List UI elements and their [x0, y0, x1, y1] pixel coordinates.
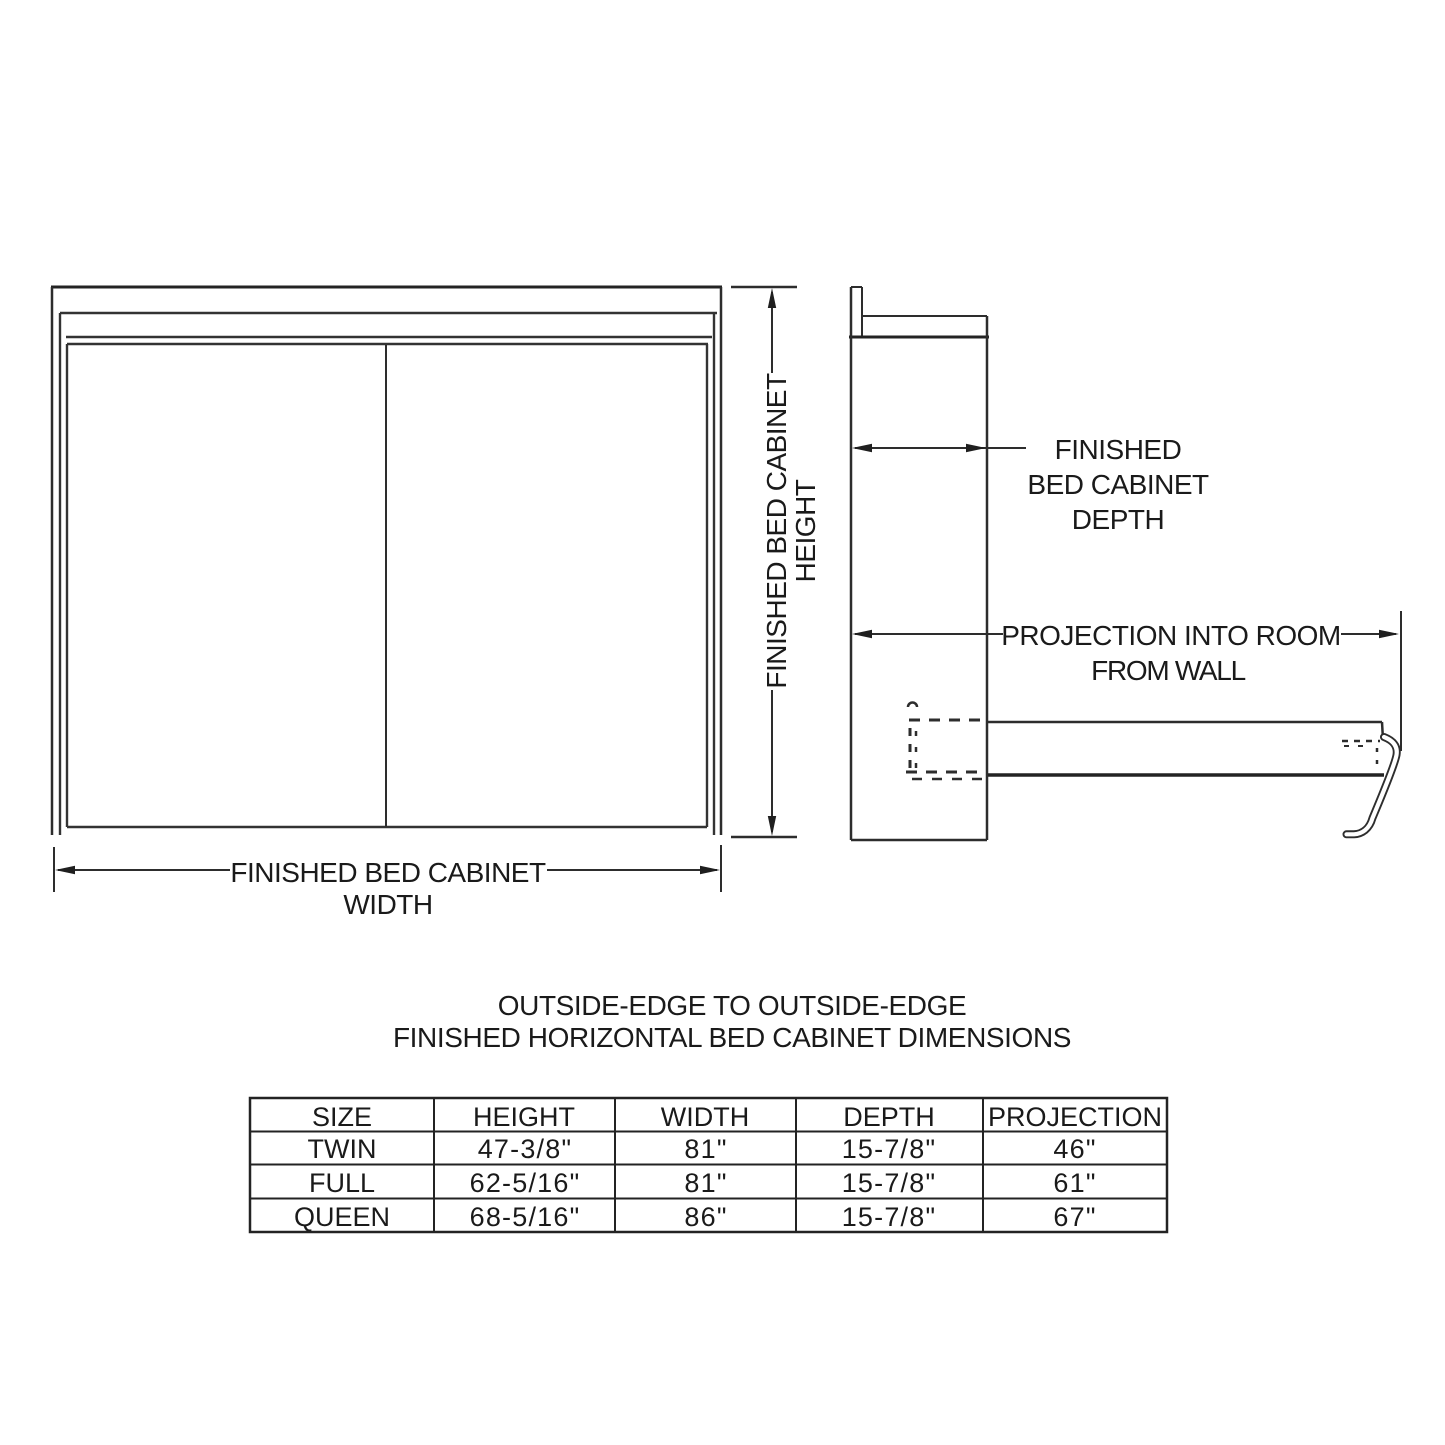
svg-text:46": 46": [1053, 1134, 1096, 1164]
svg-text:FINISHED BED CABINET: FINISHED BED CABINET: [761, 373, 792, 689]
svg-text:HEIGHT: HEIGHT: [473, 1102, 575, 1132]
svg-text:15-7/8": 15-7/8": [842, 1202, 937, 1232]
svg-text:81": 81": [684, 1134, 727, 1164]
svg-text:QUEEN: QUEEN: [294, 1202, 390, 1232]
svg-text:WIDTH: WIDTH: [343, 889, 432, 920]
svg-text:61": 61": [1053, 1168, 1096, 1198]
svg-text:FINISHED HORIZONTAL BED CABINE: FINISHED HORIZONTAL BED CABINET DIMENSIO…: [393, 1022, 1071, 1053]
svg-text:FROM WALL: FROM WALL: [1091, 655, 1245, 686]
svg-text:PROJECTION: PROJECTION: [988, 1102, 1162, 1132]
svg-text:15-7/8": 15-7/8": [842, 1168, 937, 1198]
svg-text:WIDTH: WIDTH: [661, 1102, 749, 1132]
svg-text:SIZE: SIZE: [312, 1102, 372, 1132]
svg-text:BED CABINET: BED CABINET: [1027, 469, 1209, 500]
svg-text:86": 86": [684, 1202, 727, 1232]
svg-text:62-5/16": 62-5/16": [470, 1168, 581, 1198]
svg-text:68-5/16": 68-5/16": [470, 1202, 581, 1232]
svg-text:81": 81": [684, 1168, 727, 1198]
svg-text:FULL: FULL: [309, 1168, 375, 1198]
svg-text:HEIGHT: HEIGHT: [790, 479, 821, 582]
svg-text:FINISHED BED CABINET: FINISHED BED CABINET: [230, 857, 546, 888]
svg-text:67": 67": [1053, 1202, 1096, 1232]
svg-text:47-3/8": 47-3/8": [478, 1134, 573, 1164]
svg-text:15-7/8": 15-7/8": [842, 1134, 937, 1164]
svg-text:DEPTH: DEPTH: [1072, 504, 1164, 535]
svg-text:PROJECTION INTO ROOM: PROJECTION INTO ROOM: [1001, 620, 1341, 651]
svg-text:OUTSIDE-EDGE TO OUTSIDE-EDGE: OUTSIDE-EDGE TO OUTSIDE-EDGE: [498, 990, 967, 1021]
svg-text:FINISHED: FINISHED: [1055, 434, 1182, 465]
svg-text:DEPTH: DEPTH: [843, 1102, 935, 1132]
svg-text:TWIN: TWIN: [308, 1134, 377, 1164]
